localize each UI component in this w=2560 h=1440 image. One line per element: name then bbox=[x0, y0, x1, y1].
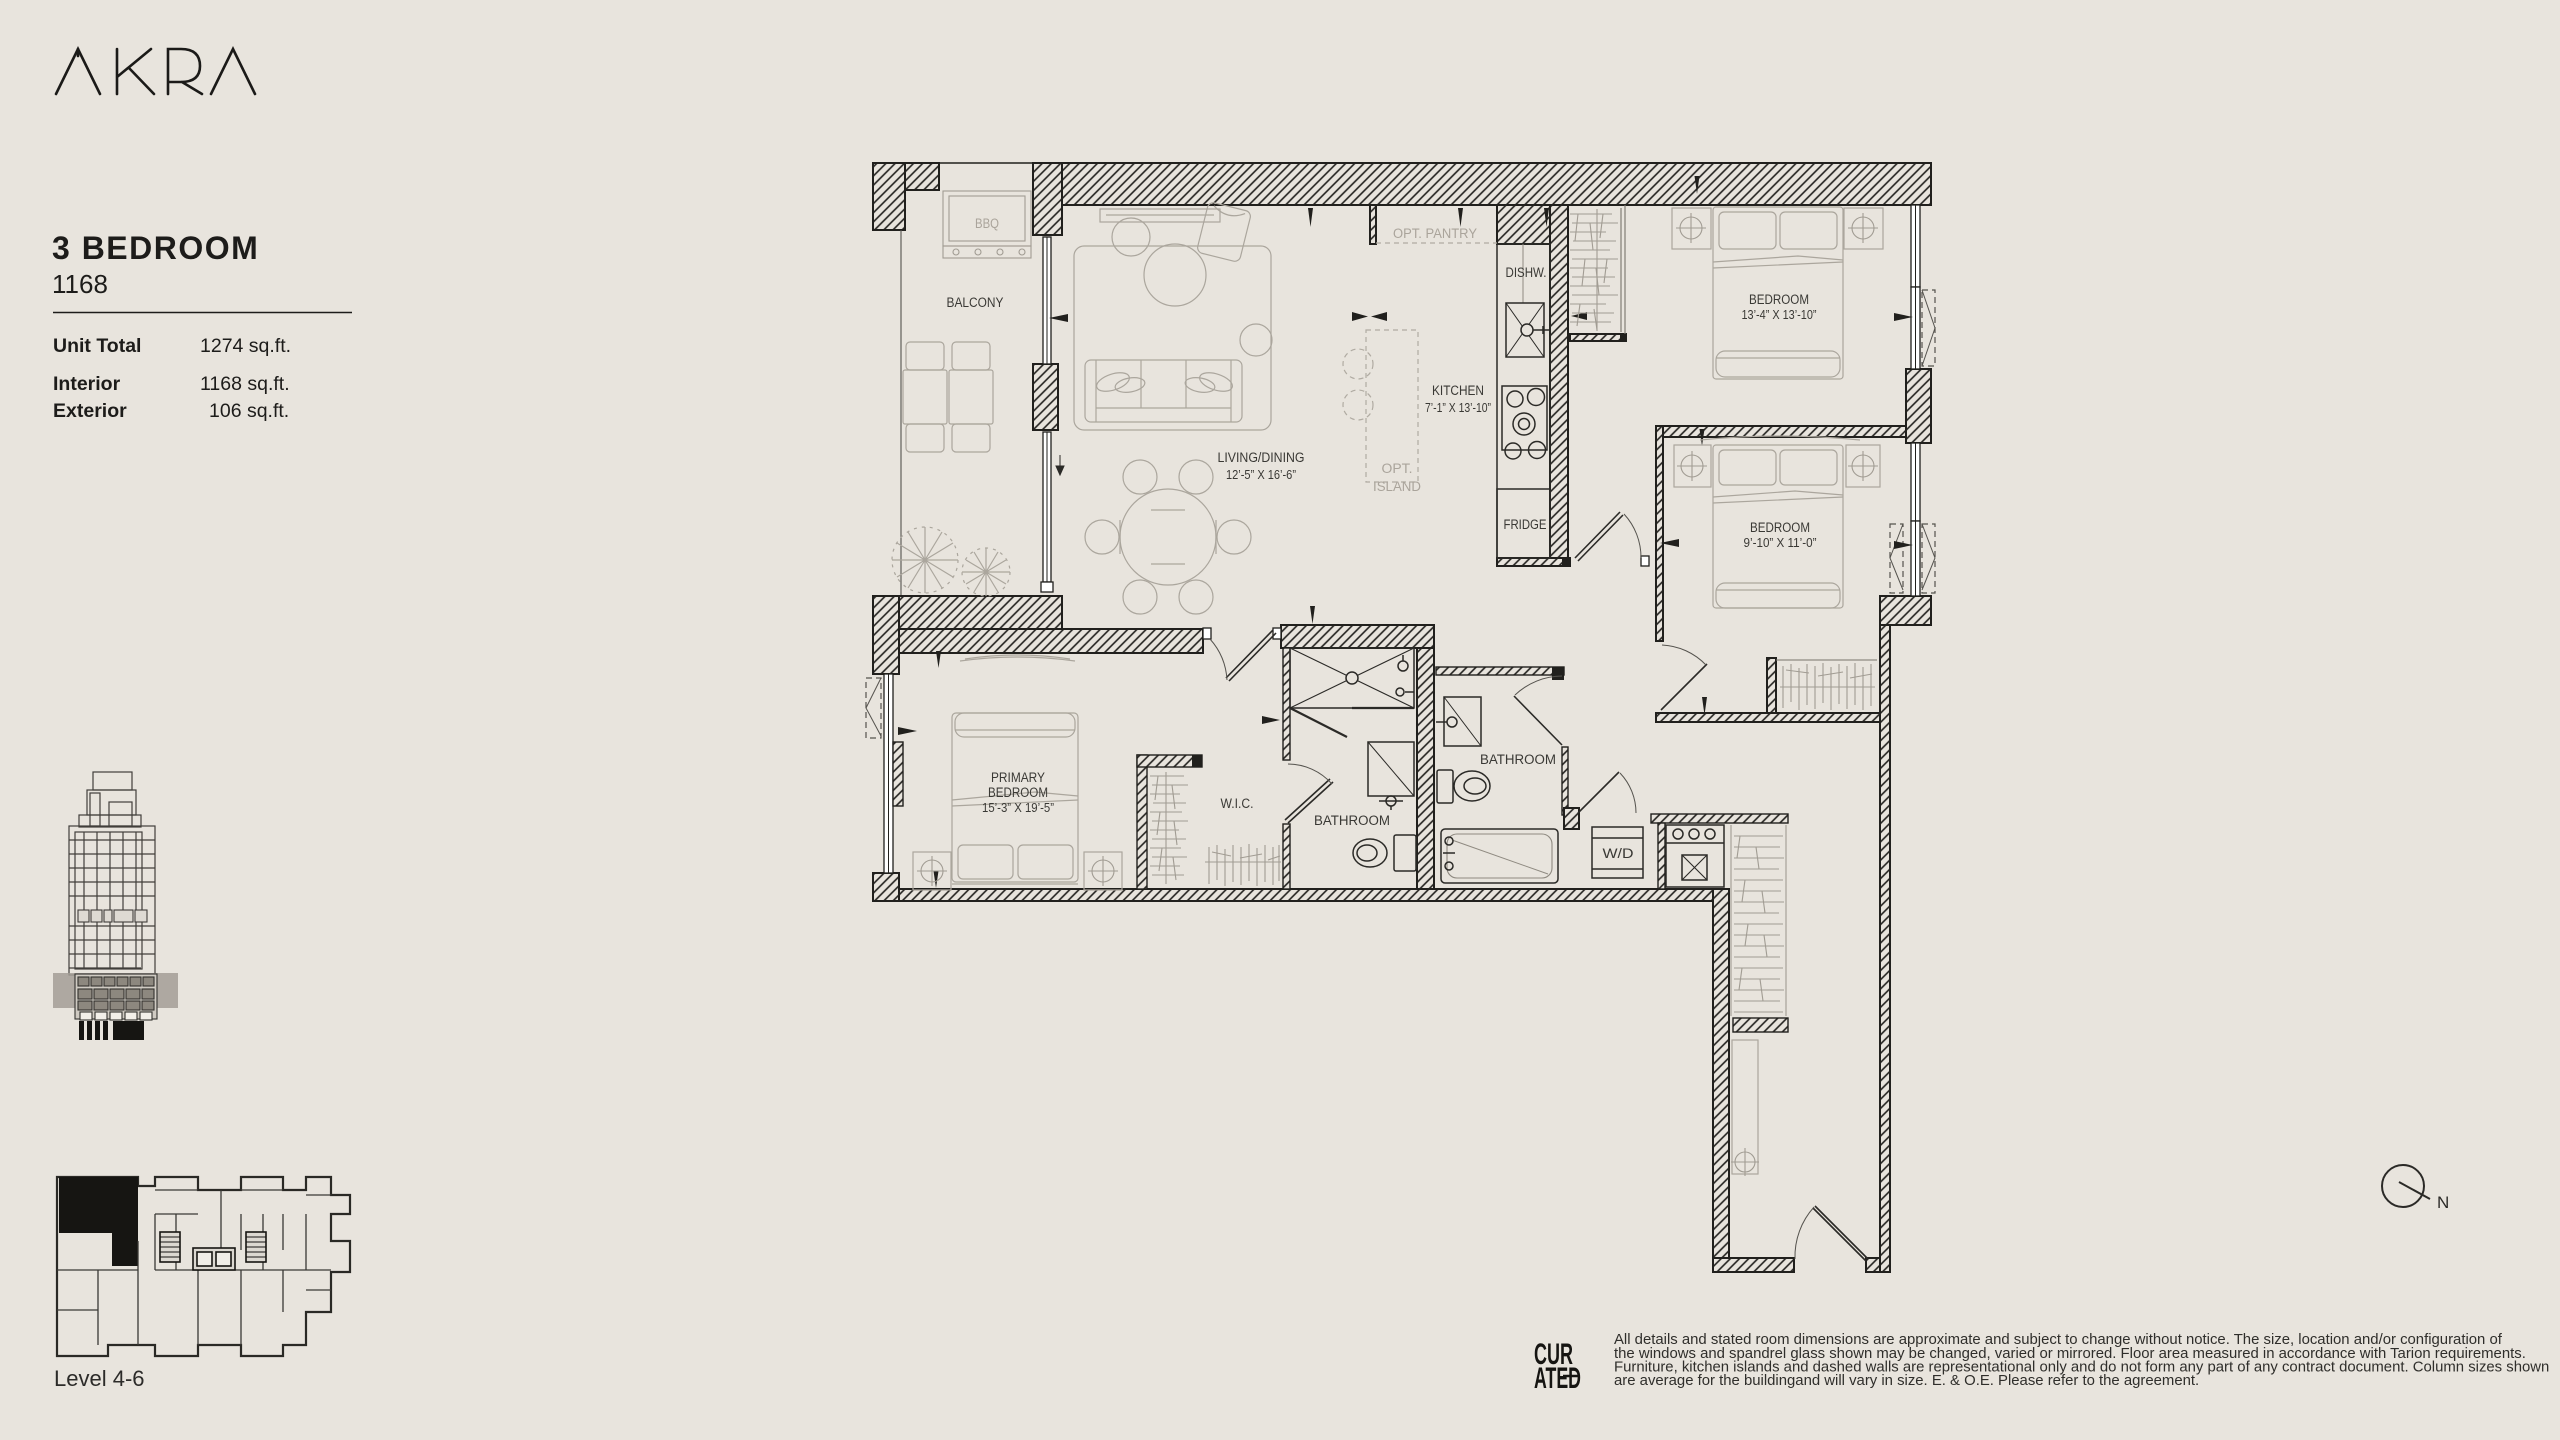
svg-text:BATHROOM: BATHROOM bbox=[1314, 813, 1390, 828]
svg-text:OPT.: OPT. bbox=[1382, 461, 1413, 476]
svg-text:3 BEDROOM: 3 BEDROOM bbox=[52, 230, 259, 266]
svg-text:12’-5” X 16’-6”: 12’-5” X 16’-6” bbox=[1226, 467, 1296, 482]
svg-text:W.I.C.: W.I.C. bbox=[1221, 796, 1254, 811]
svg-text:15’-3” X 19’-5”: 15’-3” X 19’-5” bbox=[982, 800, 1054, 815]
svg-text:N: N bbox=[2437, 1193, 2449, 1212]
svg-text:Unit Total: Unit Total bbox=[53, 335, 141, 357]
svg-text:OPT. PANTRY: OPT. PANTRY bbox=[1393, 226, 1477, 241]
svg-text:BEDROOM: BEDROOM bbox=[1749, 292, 1809, 307]
svg-text:1168: 1168 bbox=[52, 269, 108, 299]
svg-text:PRIMARY: PRIMARY bbox=[991, 770, 1045, 785]
svg-text:ISLAND: ISLAND bbox=[1373, 479, 1421, 494]
svg-text:Interior: Interior bbox=[53, 373, 121, 395]
svg-text:ATED: ATED bbox=[1534, 1362, 1581, 1395]
svg-text:W/D: W/D bbox=[1603, 846, 1634, 861]
svg-text:1168 sq.ft.: 1168 sq.ft. bbox=[200, 373, 290, 395]
svg-text:DISHW.: DISHW. bbox=[1506, 265, 1547, 280]
svg-text:7’-1” X 13’-10”: 7’-1” X 13’-10” bbox=[1425, 400, 1491, 415]
svg-text:BATHROOM: BATHROOM bbox=[1480, 752, 1556, 767]
svg-text:13’-4” X 13’-10”: 13’-4” X 13’-10” bbox=[1742, 307, 1817, 322]
svg-text:106 sq.ft.: 106 sq.ft. bbox=[209, 400, 289, 422]
svg-text:LIVING/DINING: LIVING/DINING bbox=[1218, 450, 1305, 465]
svg-text:BEDROOM: BEDROOM bbox=[1750, 520, 1810, 535]
svg-text:are average for the buildingan: are average for the buildingand will var… bbox=[1614, 1373, 2199, 1389]
svg-text:9’-10” X 11’-0”: 9’-10” X 11’-0” bbox=[1744, 535, 1817, 550]
svg-text:1274 sq.ft.: 1274 sq.ft. bbox=[200, 335, 291, 357]
svg-text:BBQ: BBQ bbox=[975, 216, 999, 231]
svg-text:FRIDGE: FRIDGE bbox=[1504, 517, 1547, 532]
svg-text:BEDROOM: BEDROOM bbox=[988, 785, 1048, 800]
svg-text:Exterior: Exterior bbox=[53, 400, 127, 422]
svg-text:KITCHEN: KITCHEN bbox=[1432, 383, 1484, 398]
svg-text:BALCONY: BALCONY bbox=[947, 295, 1004, 310]
svg-text:Level 4-6: Level 4-6 bbox=[54, 1366, 145, 1391]
